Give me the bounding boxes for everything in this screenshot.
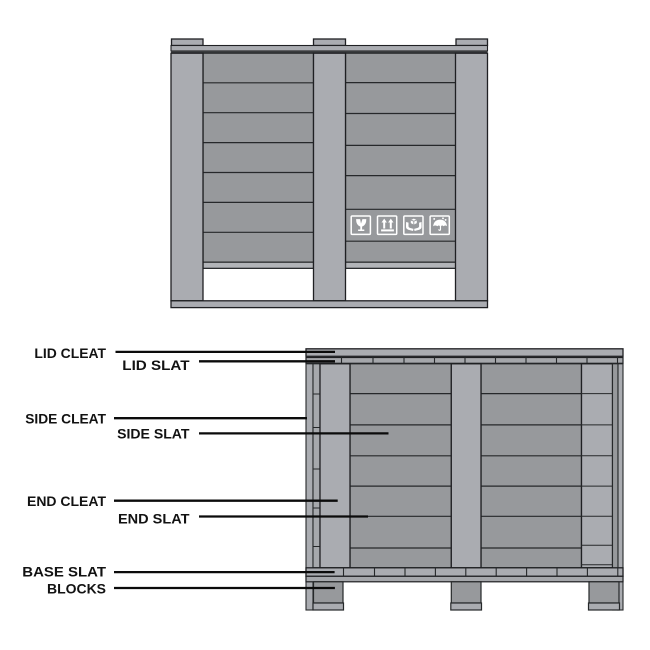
svg-text:SIDE CLEAT: SIDE CLEAT [25, 411, 106, 427]
svg-text:END CLEAT: END CLEAT [27, 493, 106, 509]
svg-text:LID SLAT: LID SLAT [122, 357, 190, 373]
svg-text:LID CLEAT: LID CLEAT [34, 345, 106, 361]
svg-text:END SLAT: END SLAT [118, 511, 190, 527]
svg-text:SIDE SLAT: SIDE SLAT [117, 426, 190, 442]
svg-text:BLOCKS: BLOCKS [47, 581, 106, 597]
svg-text:BASE SLAT: BASE SLAT [22, 563, 106, 579]
